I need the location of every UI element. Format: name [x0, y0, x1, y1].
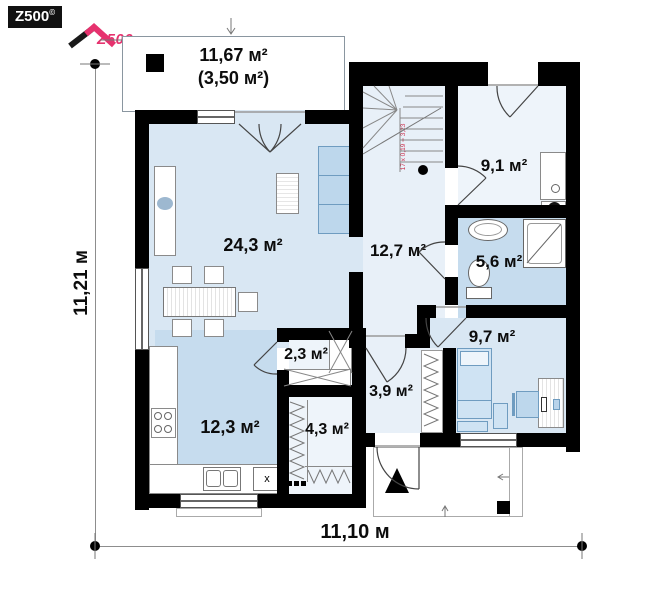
dimension-line-horizontal: [95, 546, 582, 547]
bed-blanket-line: [457, 400, 492, 401]
window-living-north: [197, 110, 235, 124]
porch-column: [497, 501, 510, 514]
dining-chair: [204, 319, 224, 337]
wardrobe-rail-line: [305, 466, 352, 467]
z500-badge: Z500©: [8, 6, 62, 28]
coffee-table: [276, 173, 299, 214]
wall-pantry-west-a: [277, 328, 289, 342]
width-dimension-label: 11,10 м: [295, 521, 415, 544]
wardrobe-rail-line: [307, 400, 308, 482]
utility-sink: [551, 184, 560, 193]
wall-bedroom-top-b: [466, 305, 580, 318]
tv-icon: [157, 197, 173, 210]
wardrobe-floor: [289, 397, 352, 494]
dimension-dot: [90, 541, 100, 551]
living-room-area-label: 24,3 м²: [183, 236, 323, 256]
dining-chair: [172, 319, 192, 337]
dimension-dot: [90, 59, 100, 69]
vent-square: [301, 481, 306, 486]
bathroom-sink-basin: [474, 223, 502, 236]
wall-closet-east: [443, 348, 456, 433]
badge-text: Z500: [15, 8, 49, 25]
toilet-tank: [466, 287, 492, 299]
height-dimension-label: 11,21 м: [71, 237, 93, 329]
sofa: [318, 146, 352, 234]
wall-utility-west: [445, 86, 458, 168]
desk-lamp: [553, 399, 560, 410]
badge-copyright: ©: [49, 8, 55, 17]
dimension-dot: [577, 541, 587, 551]
kitchen-counter-left: [149, 346, 178, 468]
sofa-cushion-line: [318, 175, 352, 176]
pantry-area-label: 2,3 м²: [256, 346, 356, 364]
dining-table: [163, 287, 236, 317]
tv-stand: [154, 166, 176, 256]
wall-bottom-left-b: [258, 494, 366, 508]
dishwasher-mark: x: [264, 473, 270, 485]
window-living-west: [135, 268, 149, 350]
dining-chair: [204, 266, 224, 284]
wall-bedroom-top-a: [430, 305, 436, 318]
kitchen-sink-basin: [223, 470, 238, 487]
terrace-column: [146, 54, 164, 72]
wardrobe-area-label: 4,3 м²: [277, 421, 377, 439]
wall-entry-vert: [417, 305, 430, 348]
wall-top-left-a: [135, 110, 197, 124]
desk-chair-back: [512, 393, 515, 416]
kitchen-sink-basin: [206, 470, 221, 487]
wall-bathroom-west-b: [445, 277, 458, 305]
entrance-marker-icon: [385, 468, 409, 493]
wall-top-left-b: [305, 110, 349, 124]
utility-area-label: 9,1 м²: [444, 157, 564, 176]
dining-chair: [238, 292, 258, 312]
wall-bottom-right-b: [420, 433, 460, 447]
wall-top-right-a: [349, 62, 488, 86]
wall-hall-west-a: [349, 86, 363, 237]
wall-right: [566, 62, 580, 452]
wall-wardrobe-west: [277, 397, 289, 494]
wall-bottom-left-a: [135, 494, 180, 508]
vent-square: [294, 481, 299, 486]
bed-pillow: [460, 351, 489, 366]
dining-chair: [172, 266, 192, 284]
entry-area-label: 3,9 м²: [341, 383, 441, 401]
window-kitchen-south: [180, 494, 258, 508]
nightstand: [457, 421, 488, 432]
desk-monitor: [541, 397, 547, 412]
bedroom-side-unit: [493, 403, 508, 429]
window-sill-kitchen: [176, 508, 262, 517]
dimension-line-vertical: [95, 64, 96, 546]
wall-bottom-right-c: [517, 433, 580, 447]
wall-bathroom-west-a: [445, 218, 458, 245]
stair-dimension-note: 17 x 0,19 = 3,23: [400, 116, 410, 178]
floor-plan-canvas: Z500© Z500 11,67 м² (3,50 м²) x: [0, 0, 655, 606]
bedroom-area-label: 9,7 м²: [432, 328, 552, 347]
desk-chair: [516, 391, 539, 418]
wall-bathroom-top: [445, 205, 580, 218]
sofa-cushion-line: [318, 204, 352, 205]
window-bedroom-south: [460, 433, 517, 447]
bathroom-area-label: 5,6 м²: [439, 253, 559, 272]
